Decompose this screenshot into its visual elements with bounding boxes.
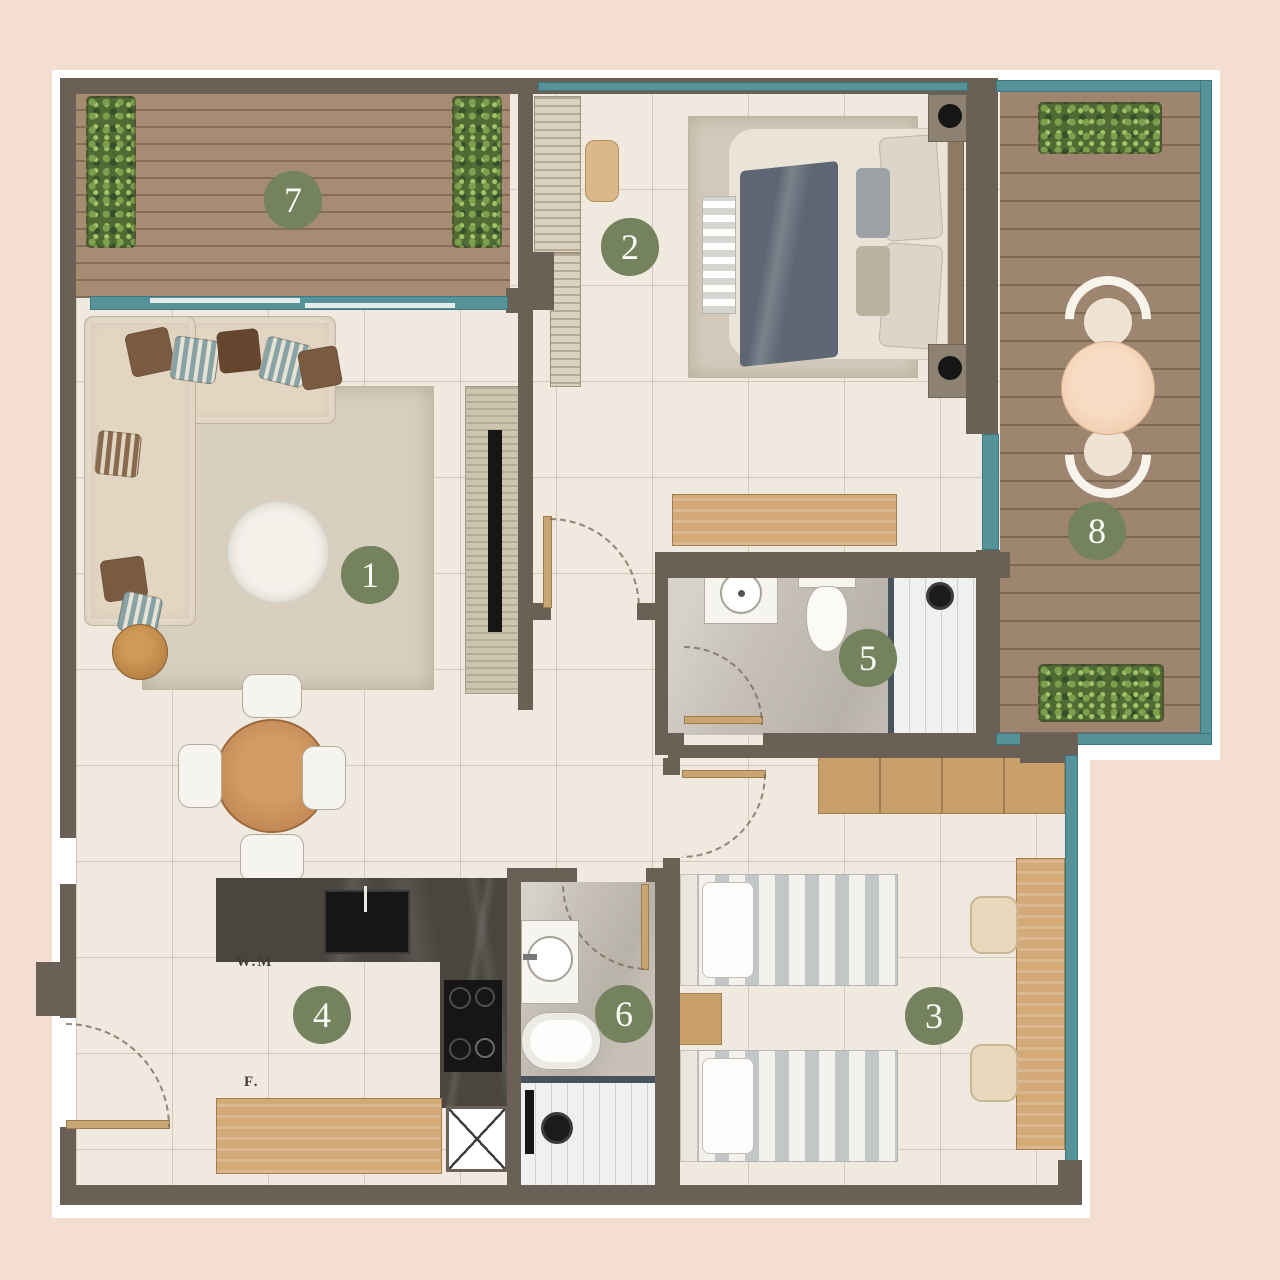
wall <box>646 868 655 882</box>
washing-machine-label: W.M <box>236 954 274 971</box>
sofa-pillow <box>297 345 343 391</box>
wall <box>1058 1160 1082 1205</box>
dining-chair <box>178 744 222 808</box>
bedroom-armchair <box>585 140 619 202</box>
terrace-chair-seat <box>1084 298 1132 346</box>
dining-chair <box>302 746 346 810</box>
fridge-label: F. <box>244 1074 260 1091</box>
terrace-table <box>1061 341 1155 435</box>
dining-chair <box>242 674 302 718</box>
badge-number: 8 <box>1088 513 1106 549</box>
basin-faucet <box>523 954 537 960</box>
nightstand-lamp <box>938 356 962 380</box>
bathtub-basin <box>530 1020 592 1062</box>
badge-kitchen: 4 <box>293 986 351 1044</box>
bed-headboard <box>946 124 964 364</box>
balcony-railing <box>996 80 1212 92</box>
bedroom-door-swing <box>550 518 640 608</box>
sliding-window-pane <box>305 303 455 308</box>
bed-pillow <box>702 1058 754 1154</box>
accent-pillow <box>856 168 890 238</box>
sofa-pillow <box>216 328 262 374</box>
single-bed-headboard <box>680 1050 698 1162</box>
burner <box>475 1038 495 1058</box>
badge-bathroom-1: 5 <box>839 629 897 687</box>
wall <box>518 252 554 310</box>
desk <box>1016 858 1065 1150</box>
wall <box>655 578 668 755</box>
toilet-bowl <box>806 586 848 652</box>
wardrobe <box>550 253 581 387</box>
bed-pillow <box>702 882 754 978</box>
badge-bedroom-2: 3 <box>905 987 963 1045</box>
bedroom-window <box>538 82 968 91</box>
badge-number: 5 <box>859 640 877 676</box>
wall <box>668 745 1020 758</box>
balcony-door-glass <box>982 434 999 550</box>
shower-bar <box>525 1090 534 1154</box>
wall <box>507 868 577 882</box>
bedroom-3-door-swing <box>682 774 766 858</box>
badge-number: 1 <box>361 557 379 593</box>
entry-door-swing <box>66 1023 170 1127</box>
burner <box>475 987 495 1007</box>
burner <box>449 1038 471 1060</box>
nightstand-lamp <box>938 104 962 128</box>
desk-chair <box>970 896 1018 954</box>
wall <box>655 868 680 1185</box>
badge-number: 7 <box>284 182 302 218</box>
bathtub <box>521 1012 601 1070</box>
burner <box>449 987 471 1009</box>
sofa-pillow <box>124 326 176 378</box>
planter <box>1038 664 1164 722</box>
wall <box>655 552 1010 578</box>
wall <box>60 94 76 838</box>
bed-blanket <box>740 161 838 367</box>
badge-living-room: 1 <box>341 546 399 604</box>
floor-plan: 1 2 3 4 5 6 7 8 W.M F. <box>0 0 1280 1280</box>
badge-number: 2 <box>621 229 639 265</box>
dresser <box>672 494 897 546</box>
side-table <box>112 624 168 680</box>
kitchen-faucet <box>364 886 367 912</box>
sliding-window-pane <box>150 298 300 303</box>
cooktop <box>444 980 502 1072</box>
kitchen-counter-wood <box>216 1098 442 1174</box>
dishwasher <box>446 1106 508 1172</box>
bedroom-window-wall <box>1065 755 1078 1167</box>
shower-head <box>926 582 954 610</box>
wall <box>966 94 998 434</box>
badge-number: 4 <box>313 997 331 1033</box>
wardrobe <box>818 757 1065 814</box>
bathroom-6-shower-glass <box>510 1076 658 1083</box>
wall <box>60 78 533 94</box>
desk-chair <box>970 1044 1018 1102</box>
wall <box>663 758 680 775</box>
wardrobe <box>534 96 581 253</box>
coffee-table <box>226 500 330 604</box>
bed-bench <box>702 196 736 314</box>
planter <box>86 96 136 248</box>
badge-balcony-1: 7 <box>264 171 322 229</box>
bathroom-door-swing <box>684 646 763 725</box>
badge-bedroom-1: 2 <box>601 218 659 276</box>
badge-balcony-2: 8 <box>1068 502 1126 560</box>
badge-bathroom-2: 6 <box>595 985 653 1043</box>
terrace-chair-seat <box>1084 428 1132 476</box>
wall <box>60 1185 1082 1205</box>
planter <box>1038 102 1162 154</box>
tv <box>488 430 502 632</box>
wall-niche <box>58 838 76 884</box>
wall <box>507 868 521 1185</box>
badge-number: 6 <box>615 996 633 1032</box>
bathroom-6-shower <box>520 1083 656 1185</box>
sofa-pillow <box>94 430 142 478</box>
wall <box>60 884 76 1018</box>
single-bed-headboard <box>680 874 698 986</box>
wall <box>976 550 1000 735</box>
shower-head <box>541 1112 573 1144</box>
sofa-pillow <box>169 335 221 385</box>
planter <box>452 96 502 248</box>
badge-number: 3 <box>925 998 943 1034</box>
wall-pilaster <box>36 962 62 1016</box>
balcony-railing <box>1200 80 1212 745</box>
kitchen-sink <box>324 890 410 954</box>
accent-pillow <box>856 246 890 316</box>
basin-drain <box>738 590 745 597</box>
dining-chair <box>240 834 304 882</box>
